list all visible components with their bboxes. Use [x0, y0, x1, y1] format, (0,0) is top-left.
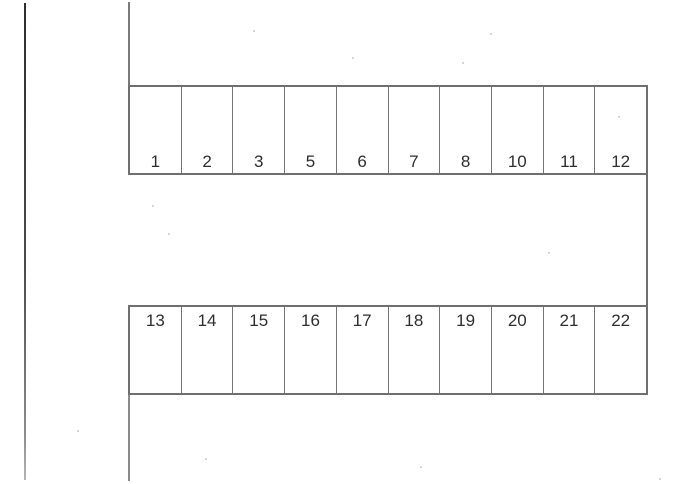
stall-number: 13 — [146, 307, 165, 329]
scan-speck — [420, 466, 422, 468]
scan-speck — [77, 430, 79, 432]
stall-number: 1 — [151, 153, 160, 173]
stall-number: 7 — [409, 153, 418, 173]
parking-stall-2: 2 — [182, 87, 234, 173]
parking-stall-10: 10 — [492, 87, 544, 173]
scan-speck — [618, 116, 620, 118]
stall-number: 6 — [357, 153, 366, 173]
scan-speck — [659, 478, 661, 480]
parking-stall-15: 15 — [233, 307, 285, 393]
stall-number: 15 — [249, 307, 268, 329]
scan-speck — [490, 33, 492, 35]
scan-speck — [152, 205, 154, 207]
scan-speck — [168, 233, 170, 235]
stall-number: 16 — [301, 307, 320, 329]
stall-number: 14 — [198, 307, 217, 329]
parking-stall-5: 5 — [285, 87, 337, 173]
parking-stall-17: 17 — [337, 307, 389, 393]
parking-stall-11: 11 — [544, 87, 596, 173]
parking-row-bottom: 13 14 15 16 17 18 19 20 21 22 — [128, 305, 648, 395]
left-boundary-line — [24, 3, 26, 480]
scan-speck — [548, 252, 550, 254]
stall-number: 11 — [560, 153, 578, 173]
parking-stall-7: 7 — [389, 87, 441, 173]
parking-layout-diagram: 1 2 3 5 6 7 8 10 11 12 13 14 15 16 17 18… — [0, 0, 681, 484]
aisle-right-boundary-line — [646, 174, 648, 306]
parking-stall-22: 22 — [595, 307, 646, 393]
parking-stall-19: 19 — [440, 307, 492, 393]
parking-stall-18: 18 — [389, 307, 441, 393]
parking-stall-1: 1 — [130, 87, 182, 173]
parking-stall-14: 14 — [182, 307, 234, 393]
scan-speck — [253, 30, 255, 32]
parking-stall-12: 12 — [595, 87, 646, 173]
parking-stall-16: 16 — [285, 307, 337, 393]
parking-stall-3: 3 — [233, 87, 285, 173]
parking-stall-8: 8 — [440, 87, 492, 173]
stall-number: 8 — [461, 153, 470, 173]
stall-number: 5 — [306, 153, 315, 173]
stall-number: 20 — [508, 307, 527, 329]
top-connector-line — [128, 2, 130, 86]
stall-number: 18 — [404, 307, 423, 329]
parking-stall-20: 20 — [492, 307, 544, 393]
stall-number: 10 — [508, 153, 527, 173]
stall-number: 22 — [611, 307, 630, 329]
stall-number: 21 — [560, 307, 579, 329]
parking-stall-21: 21 — [544, 307, 596, 393]
stall-number: 19 — [456, 307, 475, 329]
bottom-connector-line — [128, 394, 130, 481]
stall-number: 17 — [353, 307, 372, 329]
scan-speck — [352, 57, 354, 59]
parking-stall-13: 13 — [130, 307, 182, 393]
scan-speck — [462, 62, 464, 64]
scan-speck — [205, 458, 207, 460]
stall-number: 12 — [611, 153, 630, 173]
parking-stall-6: 6 — [337, 87, 389, 173]
stall-number: 3 — [254, 153, 263, 173]
stall-number: 2 — [202, 153, 211, 173]
parking-row-top: 1 2 3 5 6 7 8 10 11 12 — [128, 85, 648, 175]
